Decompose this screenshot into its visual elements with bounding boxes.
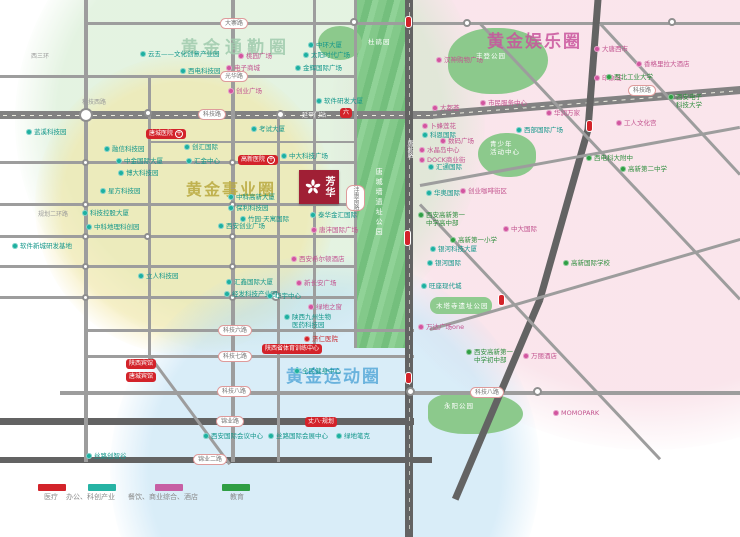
legend-label: 餐饮、商业综合、酒店 [128, 492, 198, 502]
poi-label[interactable]: 卜蜂莲花 [422, 122, 456, 130]
commerce-icon [636, 61, 642, 67]
poi-label[interactable]: 软件新城研发基地 [12, 242, 72, 250]
poi-label[interactable]: 香格里拉大酒店 [636, 60, 690, 68]
road-name-label: 延平门站 [302, 110, 326, 119]
office-icon [226, 279, 232, 285]
poi-label[interactable]: 桃园广场 [238, 52, 272, 60]
office-icon [295, 65, 301, 71]
office-icon [268, 433, 274, 439]
poi-label[interactable]: 云五——文化创意产业园 [140, 50, 220, 58]
commerce-icon [546, 110, 552, 116]
poi-label[interactable]: 考试大厦 [251, 125, 285, 133]
metro-station[interactable] [404, 230, 411, 246]
commerce-icon [422, 123, 428, 129]
office-icon [316, 98, 322, 104]
road-badge: 科技八路 [217, 386, 251, 397]
road-badge: 科技路 [198, 109, 226, 120]
legend-label: 教育 [230, 492, 244, 502]
poi-label[interactable]: 万达广场one [418, 323, 464, 331]
poi-label[interactable]: 高新国际学校 [563, 259, 610, 267]
office-icon [426, 190, 432, 196]
flower-icon [305, 179, 321, 195]
office-icon [336, 433, 342, 439]
medical-cross-icon: + [175, 130, 183, 138]
poi-label[interactable]: 中大科技广场 [281, 152, 328, 160]
road-junction [229, 233, 236, 240]
poi-label[interactable]: 西安高新第一 中学高中部 [418, 211, 465, 227]
poi-label[interactable]: 大唐西市 [594, 45, 628, 53]
legend-swatch [88, 484, 116, 491]
poi-label[interactable]: 西安高新第一 中学初中部 [466, 348, 513, 364]
poi-label[interactable]: 汇通国际 [428, 163, 462, 171]
poi-label[interactable]: 华宇中心 [267, 292, 301, 300]
office-icon [12, 243, 18, 249]
office-icon [294, 368, 300, 374]
road-junction [276, 110, 285, 119]
poi-label[interactable]: 蓝溪科技园 [26, 128, 67, 136]
road-junction [229, 263, 236, 270]
project-name: 芳华 [323, 176, 333, 198]
office-icon [516, 127, 522, 133]
poi-label[interactable]: MOMOPARK [553, 409, 599, 417]
office-icon [267, 293, 273, 299]
poi-label[interactable]: 中科地理科创园 [86, 223, 140, 231]
commerce-icon [296, 280, 302, 286]
park-label: 木塔寺遗址公园 [436, 302, 489, 310]
office-icon [308, 42, 314, 48]
road-junction [82, 263, 89, 270]
metro-station[interactable] [498, 294, 505, 306]
office-icon [140, 51, 146, 57]
metro-line-badge: 六 [340, 108, 352, 118]
poi-label[interactable]: 丝路创智谷 [86, 452, 127, 460]
legend-swatch [38, 484, 66, 491]
poi-label[interactable]: 中科高新大厦 [228, 193, 275, 201]
office-icon [303, 52, 309, 58]
road-junction [82, 233, 89, 240]
office-icon [284, 314, 290, 320]
poi-label[interactable]: 数码广场 [440, 137, 474, 145]
park-label: 丰登公园 [476, 52, 506, 60]
poi-label[interactable]: 全民健身中心 [294, 367, 341, 375]
road [60, 391, 740, 395]
poi-label[interactable]: 西安希尔顿酒店 [291, 255, 345, 263]
poi-pill[interactable]: 高新医院+ [238, 155, 278, 165]
poi-label[interactable]: 西安国际会议中心 [203, 432, 263, 440]
road-junction [668, 18, 676, 26]
zone-title: 黄金娱乐圈 [487, 27, 582, 52]
metro-station[interactable] [405, 16, 412, 28]
metro-station[interactable] [405, 372, 412, 384]
office-icon [428, 164, 434, 170]
road-junction [79, 108, 93, 122]
poi-label[interactable]: 旺座现代城 [421, 282, 462, 290]
poi-label[interactable]: 高新第一小学 [450, 236, 497, 244]
office-icon [228, 194, 234, 200]
poi-pill[interactable]: 丈八·规划 [305, 417, 337, 427]
park-shape [428, 392, 523, 434]
road-junction [144, 109, 152, 117]
office-icon [138, 273, 144, 279]
poi-label[interactable]: 工人文化宫 [616, 119, 657, 127]
office-icon [116, 158, 122, 164]
commerce-icon [523, 353, 529, 359]
road [0, 265, 357, 268]
road-badge: 光华路 [220, 71, 248, 82]
poi-label[interactable]: 创汇国际 [184, 143, 218, 151]
office-icon [86, 224, 92, 230]
road-junction [533, 387, 542, 396]
poi-label[interactable]: 水晶岛中心 [419, 146, 460, 154]
legend: 医疗办公、科创产业餐饮、商业综合、酒店教育 [0, 480, 740, 510]
road-badge: 科技七路 [218, 351, 252, 362]
poi-label[interactable]: 泰华金汇国际 [310, 211, 357, 219]
commerce-icon [308, 304, 314, 310]
poi-label[interactable]: 大都荟 [432, 104, 460, 112]
poi-pill[interactable]: 陕西省体育训练中心 [262, 344, 322, 354]
road-badge: 大寨路 [220, 18, 248, 29]
office-icon [26, 129, 32, 135]
commerce-icon [440, 138, 446, 144]
road [0, 235, 357, 238]
poi-label[interactable]: 汇鑫国际大厦 [226, 278, 273, 286]
commerce-icon [291, 256, 297, 262]
poi-label[interactable]: 中金国际大厦 [116, 157, 163, 165]
office-icon [100, 188, 106, 194]
park-label: 青少年 活动中心 [490, 140, 520, 157]
road-badge: 锦业二路 [193, 454, 227, 465]
poi-label[interactable]: 高新第二中学 [620, 165, 667, 173]
commerce-icon [228, 88, 234, 94]
poi-label[interactable]: 星方科技园 [100, 187, 141, 195]
edu-icon [606, 74, 612, 80]
road [86, 22, 740, 25]
office-icon [224, 291, 230, 297]
commerce-icon [553, 410, 559, 416]
poi-label[interactable]: 博大科技园 [118, 169, 159, 177]
metro-station[interactable] [586, 120, 593, 132]
medical-icon [304, 336, 310, 342]
office-icon [184, 144, 190, 150]
poi-label[interactable]: 创业广场 [228, 87, 262, 95]
legend-label: 医疗 [44, 492, 58, 502]
poi-label[interactable]: 万丽酒店 [523, 352, 557, 360]
commerce-icon [432, 105, 438, 111]
poi-label[interactable]: 西电科技园 [180, 67, 221, 75]
road [0, 161, 357, 164]
poi-label[interactable]: 唐沣国际广场 [311, 226, 358, 234]
office-icon [218, 223, 224, 229]
poi-label[interactable]: 陕西九州生物 医药科技园 [284, 313, 331, 329]
minor-road-label: 规划二环路 [38, 209, 68, 218]
road-junction [350, 18, 358, 26]
edu-icon [620, 166, 626, 172]
commerce-icon [480, 100, 486, 106]
park-label: 永阳公园 [444, 402, 474, 410]
poi-label[interactable]: 汇金中心 [186, 157, 220, 165]
edu-icon [586, 155, 592, 161]
commerce-icon [419, 157, 425, 163]
office-icon [203, 433, 209, 439]
road-junction [229, 159, 236, 166]
poi-pill[interactable]: 唐城宾馆 [126, 372, 156, 382]
poi-label[interactable]: 西安电子 科技大学 [668, 93, 702, 109]
road-badge: 科技路 [628, 85, 656, 96]
road-junction [144, 233, 151, 240]
road-name-label: 唐延路 [405, 140, 414, 158]
legend-swatch [155, 484, 183, 491]
office-icon [281, 153, 287, 159]
road [148, 77, 151, 360]
edu-icon [563, 260, 569, 266]
edu-icon [668, 94, 674, 100]
edu-icon [466, 349, 472, 355]
poi-label[interactable]: 西北工业大学 [606, 73, 653, 81]
commerce-icon [503, 226, 509, 232]
office-icon [422, 132, 428, 138]
poi-label[interactable]: 新长安广场 [296, 279, 337, 287]
poi-label[interactable]: 太阳时代广场 [303, 51, 350, 59]
commerce-icon [311, 227, 317, 233]
edu-icon [450, 237, 456, 243]
commerce-icon [594, 75, 600, 81]
legend-swatch [222, 484, 250, 491]
office-icon [427, 260, 433, 266]
poi-pill[interactable]: 陕西宾馆 [126, 359, 156, 369]
road-tangyan-rd-metro [405, 0, 413, 537]
road-junction [406, 387, 415, 396]
park-label: 杜鹃园 [368, 38, 391, 46]
poi-label[interactable]: 西电科大附中 [586, 154, 633, 162]
project-logo[interactable]: 芳华 [299, 170, 339, 204]
poi-label[interactable]: 华奥国际 [426, 189, 460, 197]
office-icon [251, 126, 257, 132]
commerce-icon [616, 120, 622, 126]
poi-label[interactable]: 中大国际 [503, 225, 537, 233]
map-canvas: 黄金娱乐圈黄金通勤圈黄金事业圈黄金运动圈 [0, 0, 740, 537]
office-icon [421, 283, 427, 289]
road [277, 115, 280, 462]
road [0, 75, 357, 78]
road-badge: 锦业路 [216, 416, 244, 427]
park-label: 唐城墙遗址公园 [374, 168, 383, 238]
office-icon [186, 158, 192, 164]
poi-label[interactable]: 西安创业广场 [218, 222, 265, 230]
poi-label[interactable]: 中环大厦 [308, 41, 342, 49]
road-junction [82, 159, 89, 166]
poi-label[interactable]: 融信科技园 [104, 145, 145, 153]
commerce-icon [238, 53, 244, 59]
poi-label[interactable]: 软件研发大厦 [316, 97, 363, 105]
office-icon [118, 170, 124, 176]
poi-label[interactable]: 绿地笔克 [336, 432, 370, 440]
road [0, 296, 357, 299]
poi-label[interactable]: 立人科技园 [138, 272, 179, 280]
road [354, 0, 357, 348]
road-badge: 科技六路 [218, 325, 252, 336]
edu-icon [418, 212, 424, 218]
commerce-icon [418, 324, 424, 330]
legend-label: 办公、科创产业 [66, 492, 115, 502]
poi-label[interactable]: 华润万家 [546, 109, 580, 117]
poi-label[interactable]: DOCK商业街 [419, 156, 465, 164]
poi-label[interactable]: 济仁医院 [304, 335, 338, 343]
office-icon [86, 453, 92, 459]
road-junction [463, 19, 471, 27]
office-icon [430, 246, 436, 252]
road-badge: 沣惠南路 [346, 185, 365, 211]
commerce-icon [419, 147, 425, 153]
commerce-icon [436, 57, 442, 63]
poi-label[interactable]: 银河科技大厦 [430, 245, 477, 253]
poi-label[interactable]: 丝路国际会展中心 [268, 432, 328, 440]
poi-pill[interactable]: 唐城医院+ [146, 129, 186, 139]
minor-road-label: 科技西路 [82, 97, 106, 106]
poi-label[interactable]: 创业咖啡街区 [460, 187, 507, 195]
office-icon [104, 146, 110, 152]
poi-label[interactable]: 科技控股大厦 [82, 209, 129, 217]
road [150, 141, 357, 143]
poi-label[interactable]: 绿地之窗 [308, 303, 342, 311]
poi-label[interactable]: 金辉国际广场 [295, 64, 342, 72]
commerce-icon [594, 46, 600, 52]
road-junction [82, 294, 89, 301]
office-icon [180, 68, 186, 74]
road-junction [82, 201, 89, 208]
poi-label[interactable]: 保利科技园 [228, 204, 269, 212]
road-badge: 科技八路 [470, 387, 504, 398]
commerce-icon [460, 188, 466, 194]
poi-label[interactable]: 西部国际广场 [516, 126, 563, 134]
office-icon [228, 205, 234, 211]
poi-label[interactable]: 银河国际 [427, 259, 461, 267]
office-icon [310, 212, 316, 218]
minor-road-label: 西三环 [31, 51, 49, 60]
poi-label[interactable]: 市民服务中心 [480, 99, 527, 107]
medical-cross-icon: + [267, 156, 275, 164]
road-jinye-rd [0, 418, 414, 425]
office-icon [82, 210, 88, 216]
